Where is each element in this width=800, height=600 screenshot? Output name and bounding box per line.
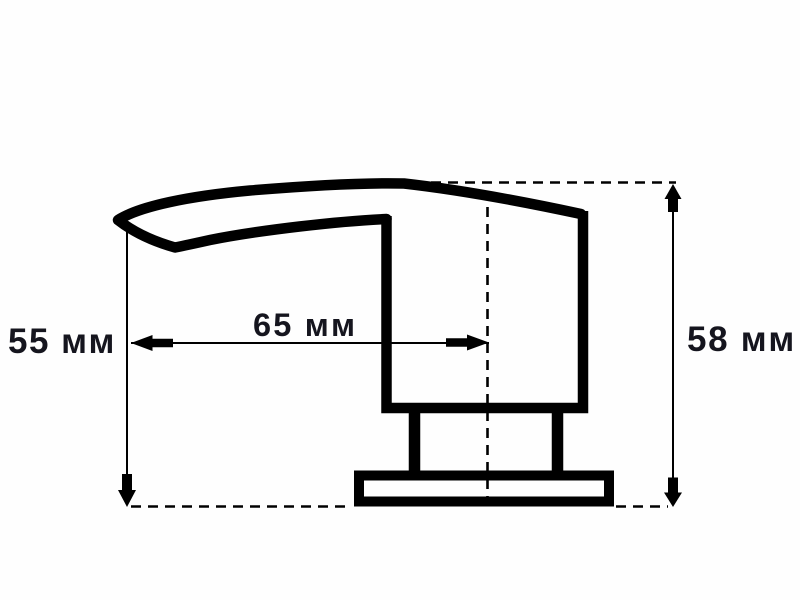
svg-text:55 мм: 55 мм xyxy=(8,322,116,361)
svg-text:58 мм: 58 мм xyxy=(687,320,796,359)
svg-text:65 мм: 65 мм xyxy=(253,307,357,343)
